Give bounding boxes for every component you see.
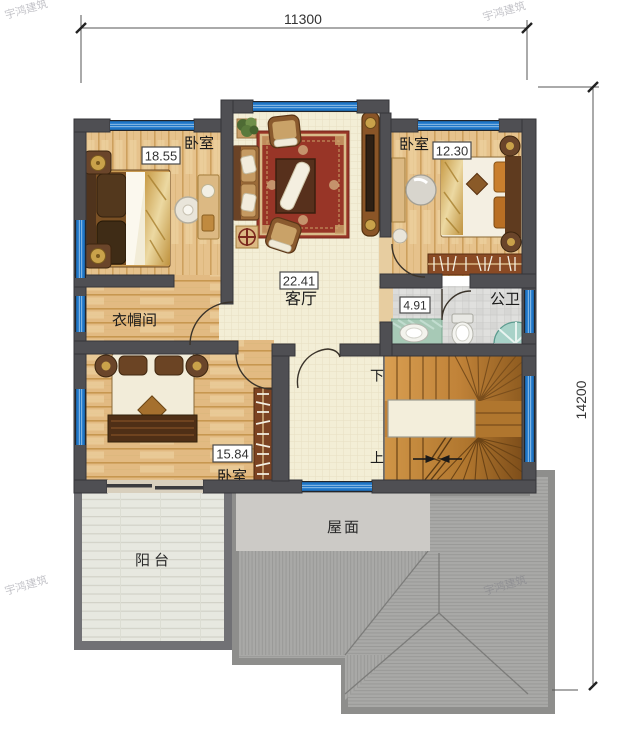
svg-text:4.91: 4.91 <box>403 299 427 313</box>
svg-text:18.55: 18.55 <box>145 149 178 164</box>
svg-text:12.30: 12.30 <box>436 144 469 159</box>
svg-text:22.41: 22.41 <box>283 274 316 289</box>
svg-text:11300: 11300 <box>284 11 322 27</box>
svg-text:15.84: 15.84 <box>216 447 249 462</box>
svg-text:14200: 14200 <box>573 380 589 419</box>
